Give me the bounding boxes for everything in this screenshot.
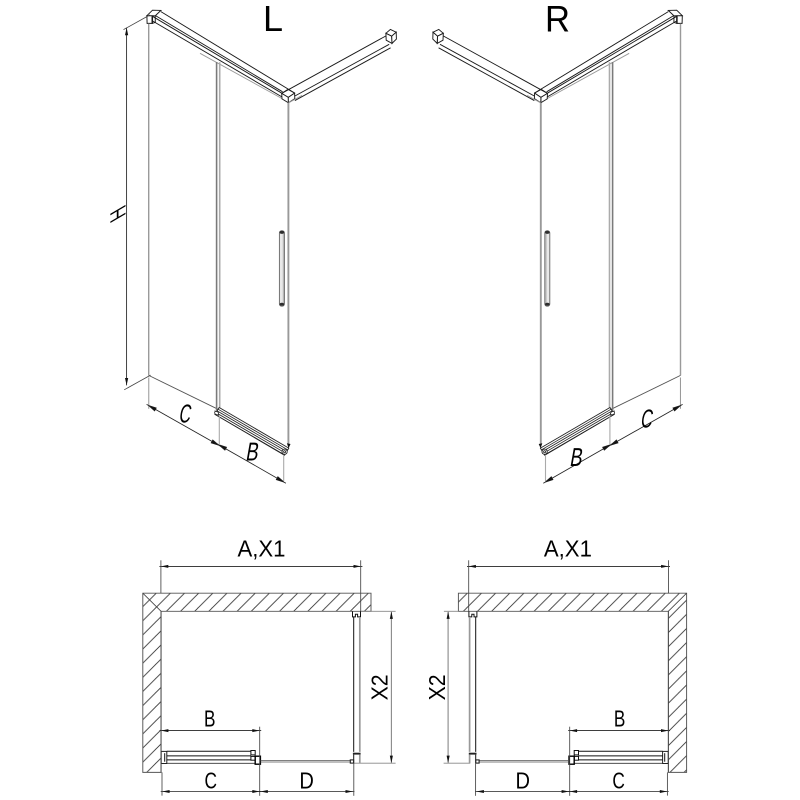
svg-text:X2: X2 bbox=[367, 674, 393, 700]
svg-text:L: L bbox=[263, 0, 283, 39]
svg-text:C: C bbox=[205, 767, 218, 793]
svg-text:D: D bbox=[516, 767, 531, 793]
svg-text:X2: X2 bbox=[424, 674, 450, 700]
svg-text:B: B bbox=[614, 706, 626, 732]
svg-text:B: B bbox=[204, 706, 216, 732]
svg-text:C: C bbox=[612, 767, 625, 793]
svg-text:A,X1: A,X1 bbox=[238, 536, 286, 562]
svg-text:A,X1: A,X1 bbox=[544, 536, 592, 562]
svg-text:D: D bbox=[299, 767, 314, 793]
svg-text:R: R bbox=[545, 0, 570, 40]
